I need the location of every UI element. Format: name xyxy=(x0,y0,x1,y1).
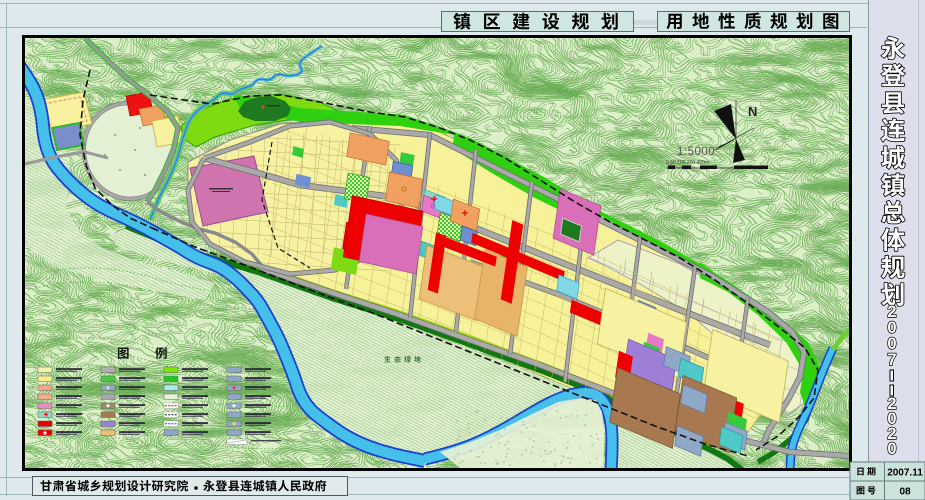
svg-text:0: 0 xyxy=(887,440,896,458)
svg-text:0 50 100 200 400m: 0 50 100 200 400m xyxy=(666,160,709,166)
svg-text:N: N xyxy=(748,104,757,119)
svg-text:7: 7 xyxy=(887,351,896,369)
svg-text:1:5000: 1:5000 xyxy=(677,146,715,158)
svg-text:2007.11: 2007.11 xyxy=(887,468,923,479)
svg-text:08: 08 xyxy=(899,487,911,498)
